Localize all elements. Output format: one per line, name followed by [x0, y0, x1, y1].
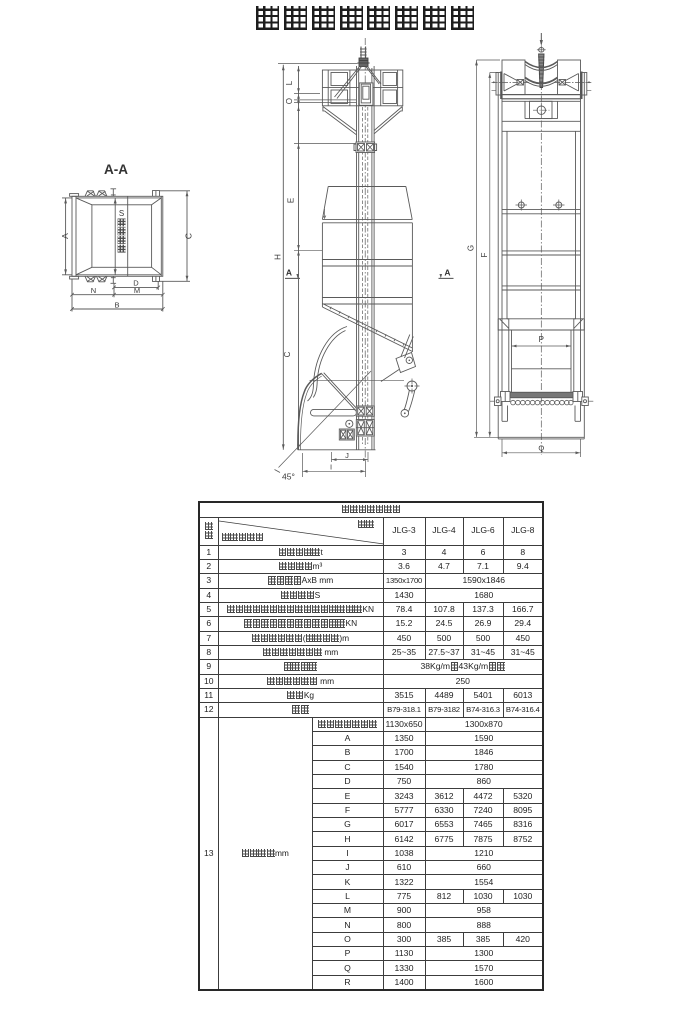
svg-text:O: O [285, 98, 294, 104]
svg-text:C: C [283, 351, 292, 357]
svg-text:S: S [119, 209, 124, 218]
svg-text:B: B [114, 300, 119, 309]
svg-text:I: I [330, 463, 332, 472]
svg-text:P: P [539, 335, 544, 344]
svg-text:C: C [184, 233, 194, 239]
svg-text:J: J [345, 451, 349, 460]
svg-text:A: A [60, 233, 70, 239]
svg-text:A-A: A-A [104, 162, 128, 177]
svg-text:Q: Q [538, 444, 544, 453]
svg-text:F: F [480, 252, 489, 257]
svg-text:45°: 45° [282, 472, 295, 482]
svg-text:E: E [287, 198, 296, 203]
svg-text:M: M [134, 286, 140, 295]
svg-text:A: A [286, 268, 292, 278]
svg-text:A: A [444, 268, 450, 278]
svg-text:N: N [91, 286, 96, 295]
svg-text:G: G [467, 245, 476, 251]
svg-text:L: L [285, 80, 294, 85]
svg-text:H: H [273, 254, 282, 260]
